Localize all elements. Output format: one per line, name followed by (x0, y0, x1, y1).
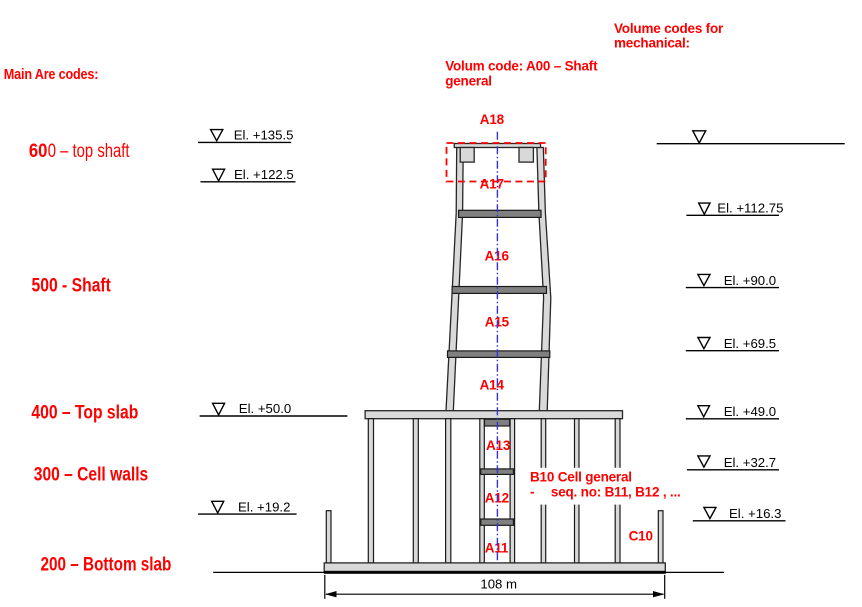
svg-text:500 - Shaft: 500 - Shaft (32, 276, 112, 297)
svg-text:El. +112.75: El. +112.75 (717, 201, 783, 216)
svg-text:El. +16.3: El. +16.3 (729, 506, 781, 521)
svg-text:Volum code: A00 – Shaft: Volum code: A00 – Shaft (445, 59, 598, 74)
svg-text:El. +49.0: El. +49.0 (724, 404, 776, 419)
svg-text:El. +32.7: El. +32.7 (724, 455, 776, 470)
svg-text:B10 Cell general: B10 Cell general (530, 470, 632, 485)
svg-text:El. +69.5: El. +69.5 (724, 336, 776, 351)
svg-text:A14: A14 (480, 378, 505, 393)
svg-text:108 m: 108 m (480, 576, 517, 591)
svg-text:0 – top shaft: 0 – top shaft (48, 141, 130, 162)
svg-text:general: general (445, 73, 492, 88)
svg-text:C10: C10 (629, 529, 653, 544)
svg-text:A17: A17 (480, 177, 504, 192)
svg-text:A18: A18 (480, 112, 505, 127)
svg-text:300 – Cell walls: 300 – Cell walls (34, 465, 148, 486)
svg-text:Volume codes for: Volume codes for (614, 21, 724, 36)
svg-text:seq. no: B11, B12 , ...: seq. no: B11, B12 , ... (551, 484, 681, 499)
svg-text:mechanical:: mechanical: (614, 36, 690, 51)
svg-text:Main Are codes:: Main Are codes: (4, 67, 99, 83)
svg-text:-: - (530, 484, 534, 499)
svg-text:El. +19.2: El. +19.2 (238, 499, 290, 514)
svg-text:El. +135.5: El. +135.5 (234, 127, 294, 142)
svg-text:El. +122.5: El. +122.5 (234, 167, 294, 182)
svg-text:A13: A13 (486, 438, 511, 453)
svg-text:60: 60 (29, 141, 48, 162)
svg-text:400 – Top slab: 400 – Top slab (31, 403, 138, 424)
svg-text:El. +50.0: El. +50.0 (239, 401, 291, 416)
svg-text:200 – Bottom slab: 200 – Bottom slab (41, 555, 172, 576)
svg-text:El. +90.0: El. +90.0 (724, 273, 776, 288)
